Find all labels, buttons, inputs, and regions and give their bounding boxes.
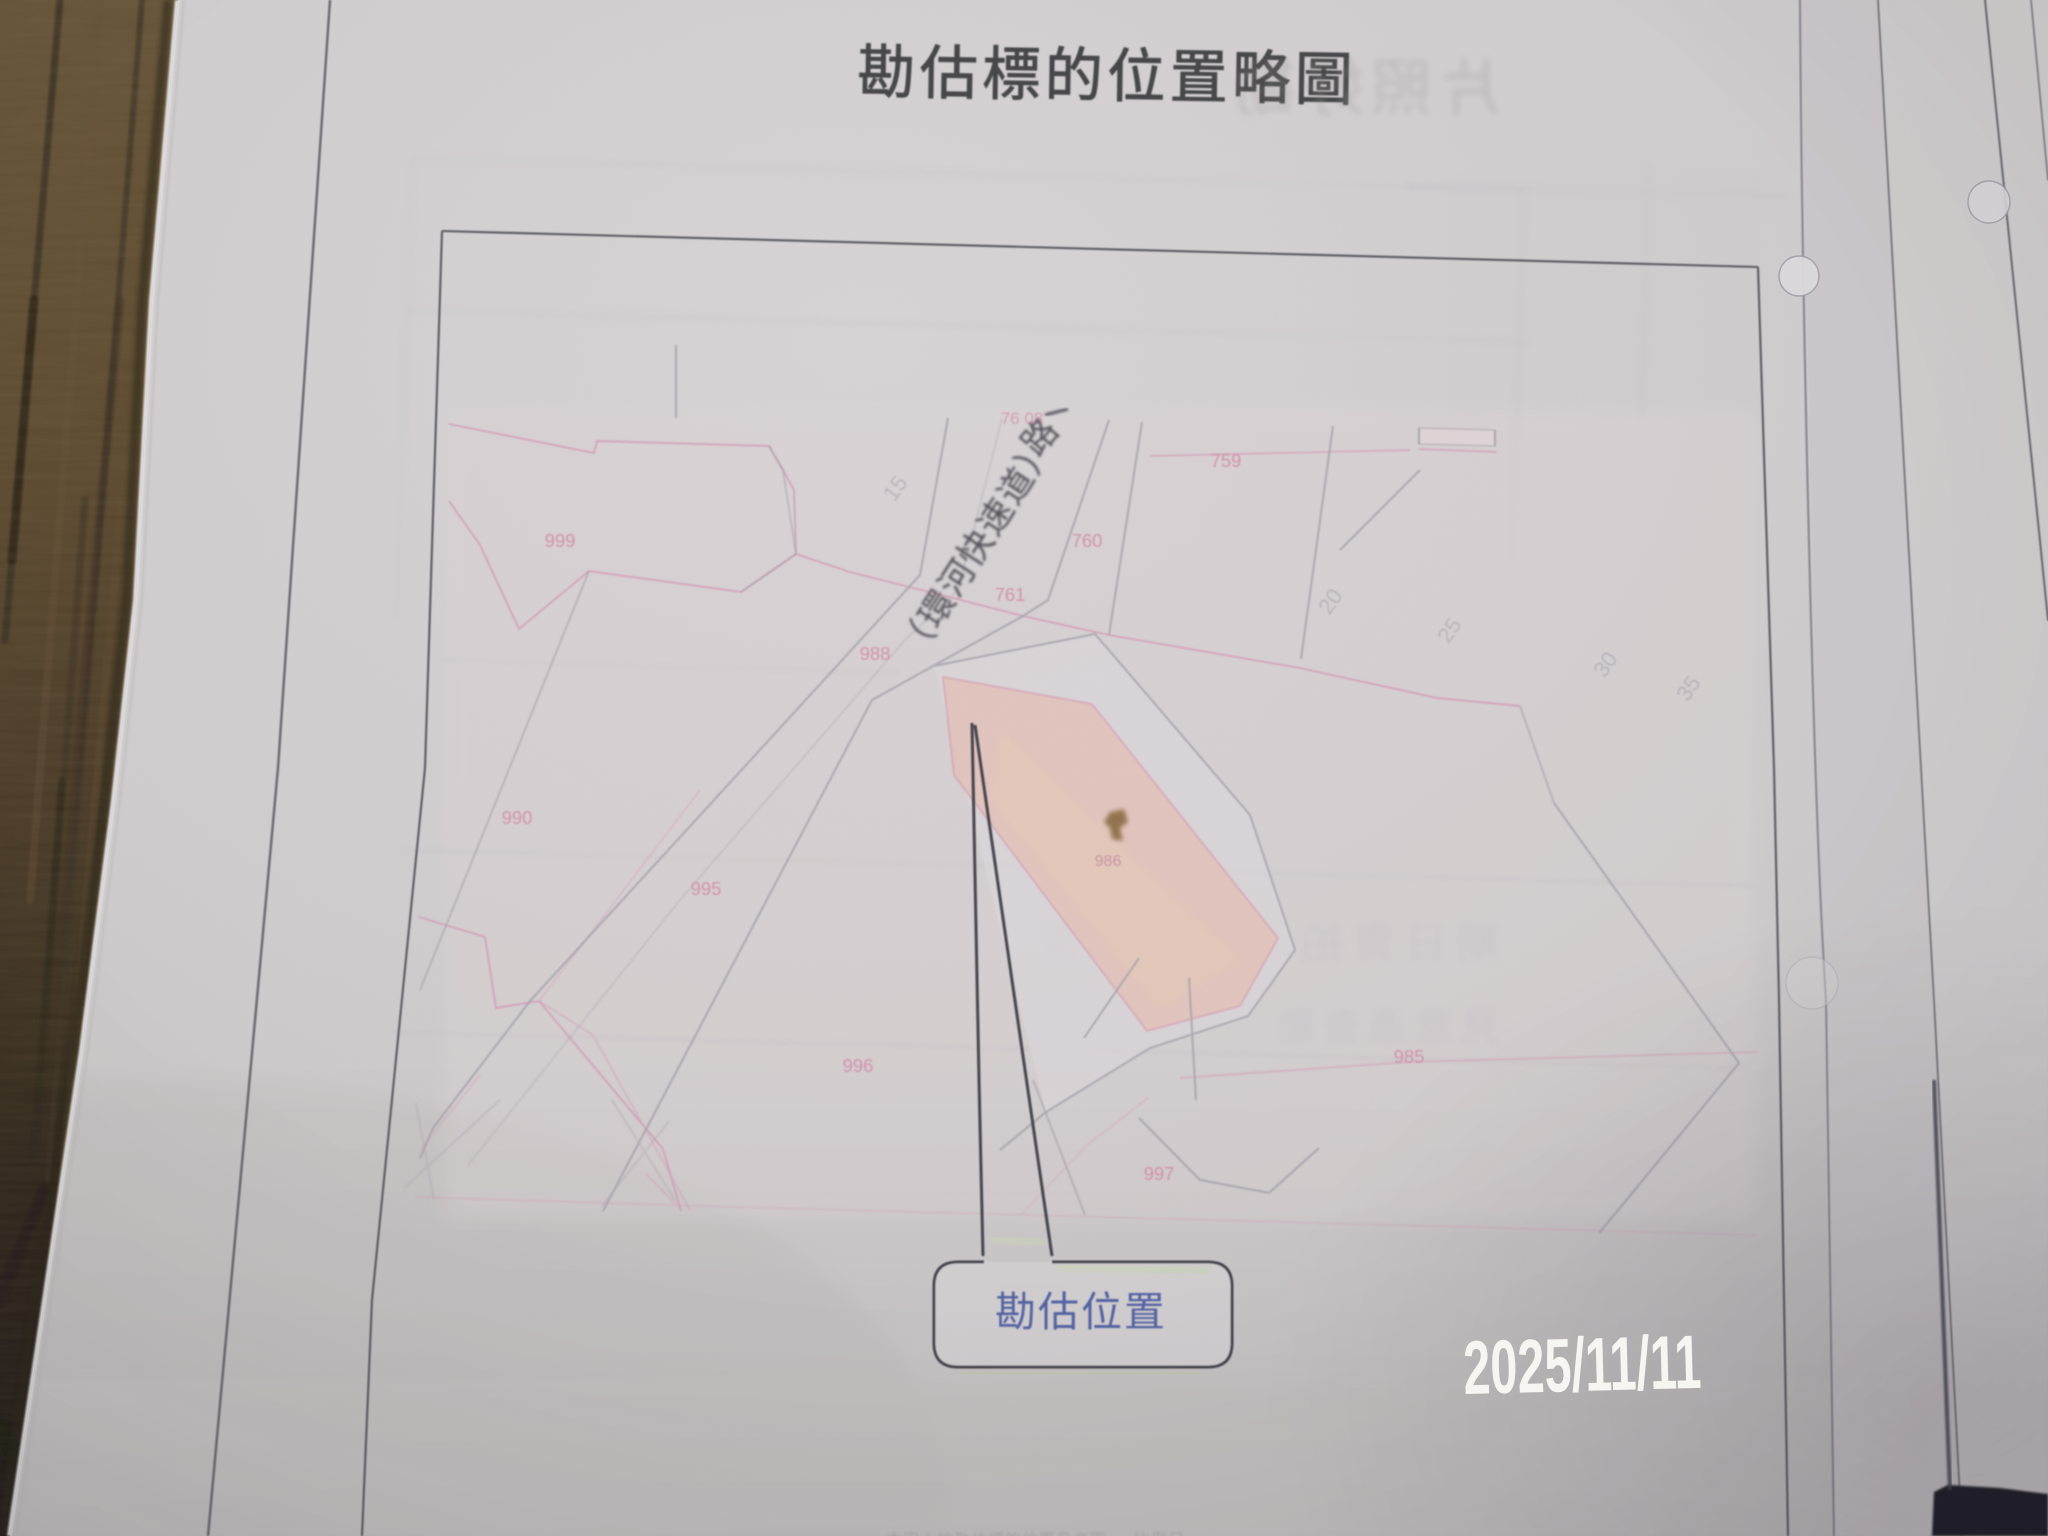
svg-text:2025/11/11: 2025/11/11 xyxy=(1462,1320,1702,1411)
